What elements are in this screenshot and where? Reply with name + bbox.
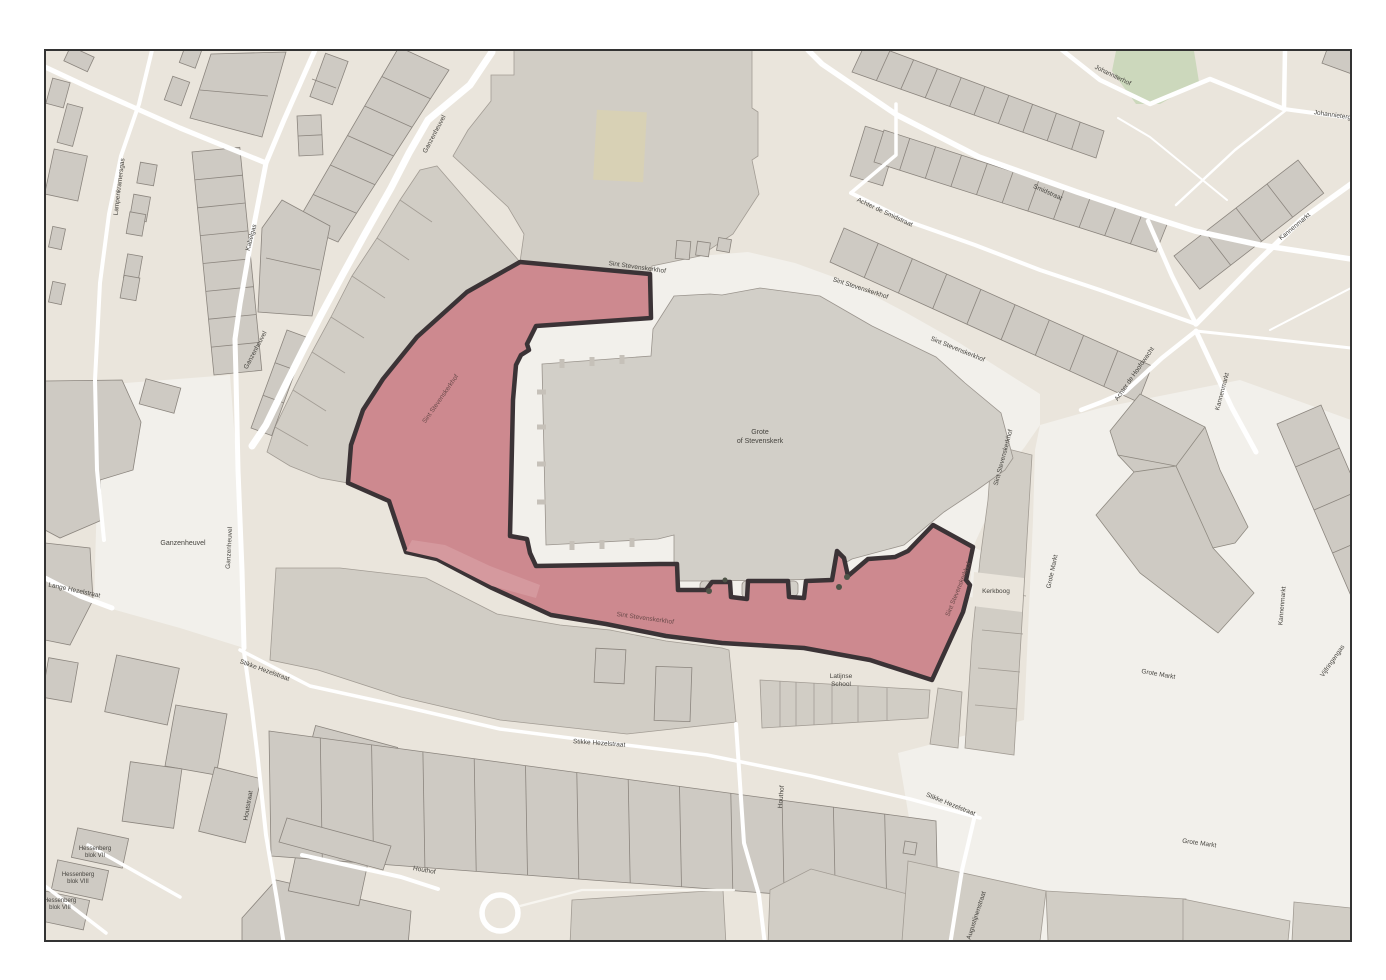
svg-text:School: School bbox=[831, 681, 851, 688]
svg-text:blok VII: blok VII bbox=[85, 853, 105, 859]
svg-text:Hessenberg: Hessenberg bbox=[62, 872, 94, 878]
svg-text:Latijnse: Latijnse bbox=[830, 673, 853, 680]
svg-text:of Stevenskerk: of Stevenskerk bbox=[737, 438, 784, 445]
svg-text:blok VIII: blok VIII bbox=[67, 879, 89, 885]
svg-text:Kerkboog: Kerkboog bbox=[982, 588, 1010, 595]
svg-text:Hessenberg: Hessenberg bbox=[44, 898, 76, 904]
svg-text:Hessenberg: Hessenberg bbox=[79, 846, 111, 852]
svg-text:Grote: Grote bbox=[751, 429, 769, 436]
svg-text:blok VIII: blok VIII bbox=[49, 905, 71, 911]
svg-text:Ganzenheuvel: Ganzenheuvel bbox=[160, 540, 206, 547]
